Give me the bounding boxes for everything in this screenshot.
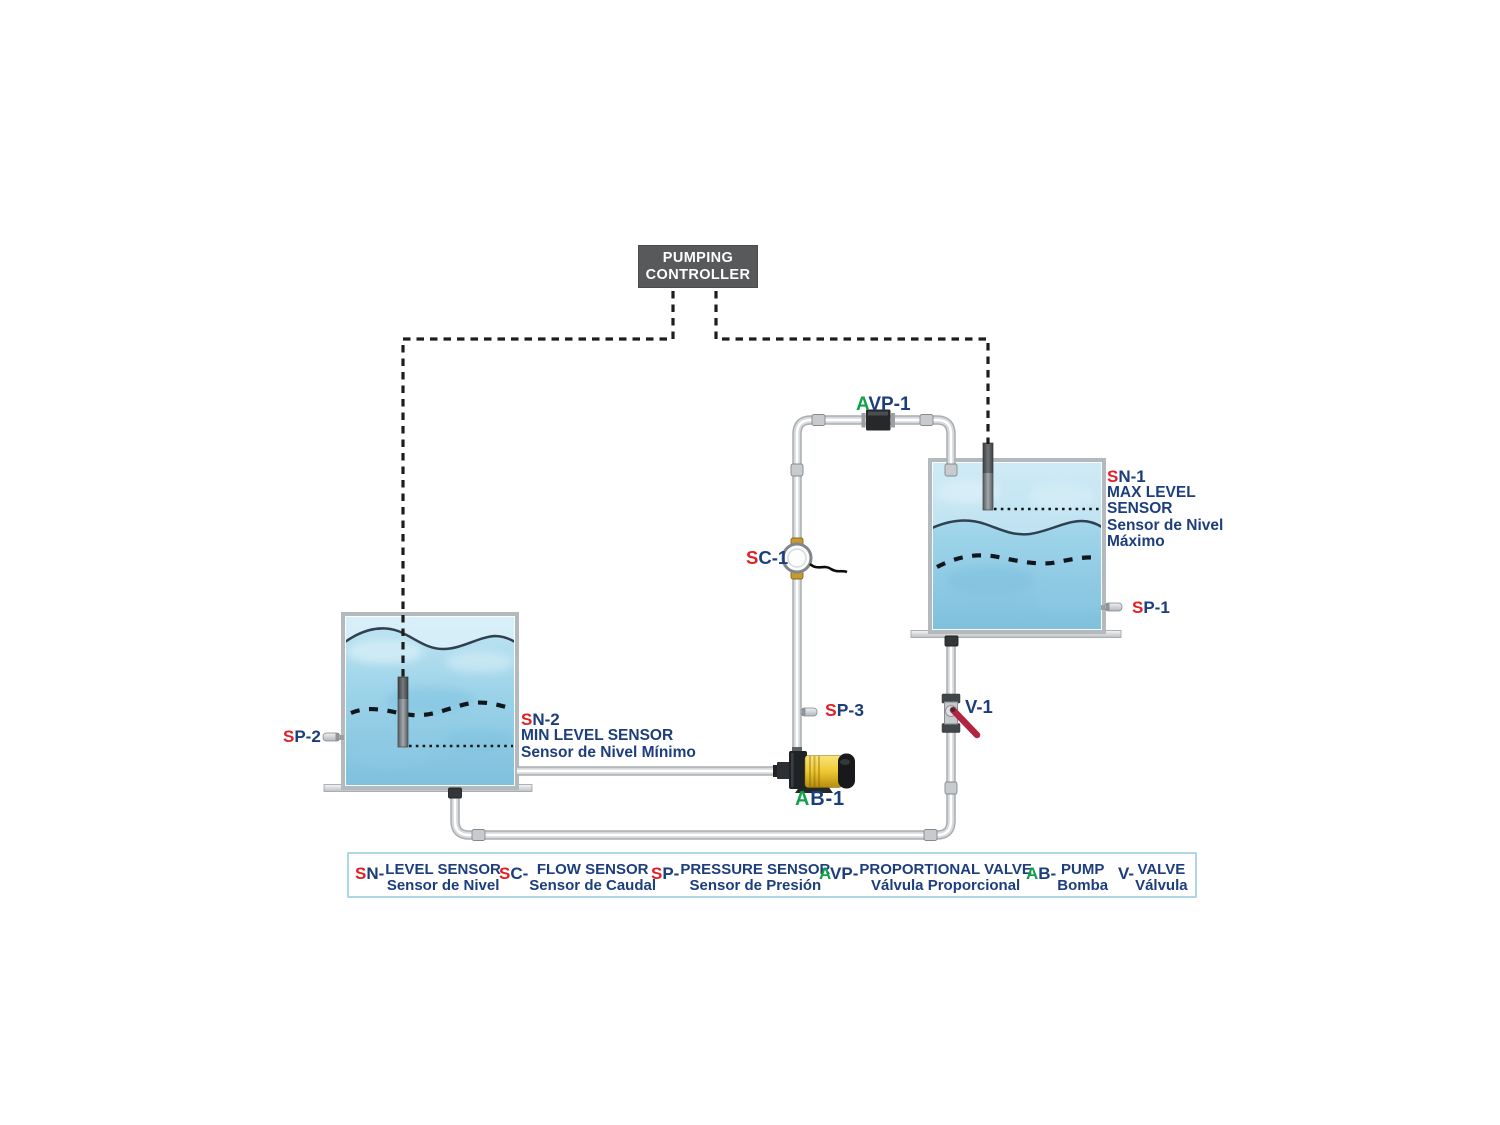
legend-sn-en: LEVEL SENSOR (385, 862, 501, 878)
legend-ab-prefix: AB- (1026, 862, 1056, 884)
sn1-prefix: S (1107, 467, 1118, 486)
legend-sn-prefix: SN- (355, 862, 384, 884)
collar (812, 415, 825, 426)
legend-item-pump: AB- PUMPBomba (1026, 862, 1108, 893)
legend-sc-prefix: SC- (499, 862, 528, 884)
right-tank-drain-fitting (945, 636, 958, 646)
sc1-id: C-1 (758, 547, 788, 568)
ab1-prefix: A (795, 788, 810, 810)
sn1-id-line: SN-1 (1107, 469, 1223, 485)
sp3-id: P-3 (837, 700, 864, 720)
sc1-label: SC-1 (746, 547, 788, 569)
legend-sp-es: Sensor de Presión (680, 878, 830, 894)
ab1-label: AB-1 (795, 788, 845, 811)
legend-box: SN- LEVEL SENSORSensor de Nivel SC- FLOW… (347, 852, 1197, 898)
sn1-desc-en-1: MAX LEVEL (1107, 485, 1223, 501)
sp3-label: SP-3 (825, 700, 864, 721)
sn1-desc-es-1: Sensor de Nivel (1107, 518, 1223, 534)
legend-avp-es: Válvula Proporcional (859, 878, 1032, 894)
flow-sensor-sc1 (783, 544, 847, 572)
sn1-id: N-1 (1118, 467, 1145, 486)
legend-avp-prefix: AVP- (819, 862, 858, 884)
sc1-cable (810, 564, 847, 572)
sn1-desc-en-2: SENSOR (1107, 501, 1223, 517)
sp3-prefix: S (825, 700, 837, 720)
legend-item-pressure-sensor: SP- PRESSURE SENSORSensor de Presión (651, 862, 830, 893)
pump-end-cap (838, 754, 855, 789)
sn1-desc-es-2: Máximo (1107, 534, 1223, 550)
sp1-prefix: S (1132, 598, 1143, 617)
legend-sn-es: Sensor de Nivel (385, 878, 501, 894)
pipes (455, 420, 951, 835)
left-tank (343, 614, 517, 788)
controller-line2: CONTROLLER (639, 267, 757, 284)
sn2-desc-es: Sensor de Nivel Mínimo (521, 745, 696, 761)
pump-ab1 (773, 747, 855, 793)
pumping-system-diagram: PUMPING CONTROLLER AVP-1 SC-1 SP-3 AB-1 … (0, 0, 1500, 1125)
v1-label: V-1 (965, 696, 993, 718)
legend-sp-prefix: SP- (651, 862, 679, 884)
pumping-controller: PUMPING CONTROLLER (638, 245, 758, 288)
legend-avp-en: PROPORTIONAL VALVE (859, 862, 1032, 878)
sn2-id-line: SN-2 (521, 712, 696, 728)
sp2-id: P-2 (294, 727, 320, 746)
collar (791, 464, 803, 476)
legend-item-flow-sensor: SC- FLOW SENSORSensor de Caudal (499, 862, 656, 893)
legend-v-prefix: V- (1118, 862, 1134, 884)
sp1-label: SP-1 (1132, 598, 1170, 618)
legend-sc-en: FLOW SENSOR (529, 862, 656, 878)
sn2-id: N-2 (532, 710, 559, 729)
legend-v-es: Válvula (1135, 878, 1188, 894)
controller-line1: PUMPING (639, 250, 757, 267)
sc1-prefix: S (746, 547, 758, 568)
collar (924, 830, 937, 841)
legend-sp-en: PRESSURE SENSOR (680, 862, 830, 878)
collar (945, 782, 957, 794)
legend-item-level-sensor: SN- LEVEL SENSORSensor de Nivel (355, 862, 501, 893)
right-tank (930, 460, 1105, 632)
legend-ab-en: PUMP (1057, 862, 1108, 878)
sn2-prefix: S (521, 710, 532, 729)
pipe-fittings (449, 415, 959, 841)
sn1-label-block: SN-1 MAX LEVEL SENSOR Sensor de Nivel Má… (1107, 469, 1223, 550)
legend-ab-es: Bomba (1057, 878, 1108, 894)
left-tank-drain-fitting (449, 788, 462, 798)
discharge-pipe (797, 420, 951, 757)
sp3-nozzle (801, 708, 817, 716)
sn2-desc-en: MIN LEVEL SENSOR (521, 728, 696, 744)
legend-item-proportional-valve: AVP- PROPORTIONAL VALVEVálvula Proporcio… (819, 862, 1032, 893)
avp1-label: AVP-1 (856, 394, 911, 416)
legend-item-valve: V- VALVEVálvula (1118, 862, 1188, 893)
avp1-id: VP-1 (868, 394, 910, 415)
sp2-prefix: S (283, 727, 294, 746)
collar (920, 415, 933, 426)
collar (945, 464, 957, 476)
sp1-id: P-1 (1143, 598, 1169, 617)
ab1-id: B-1 (810, 788, 845, 810)
collar (472, 830, 485, 841)
sp2-label: SP-2 (283, 727, 321, 747)
legend-sc-es: Sensor de Caudal (529, 878, 656, 894)
avp1-prefix: A (856, 394, 868, 415)
sp2-nozzle (323, 733, 344, 741)
sn2-label-block: SN-2 MIN LEVEL SENSOR Sensor de Nivel Mí… (521, 712, 696, 761)
legend-v-en: VALVE (1135, 862, 1188, 878)
